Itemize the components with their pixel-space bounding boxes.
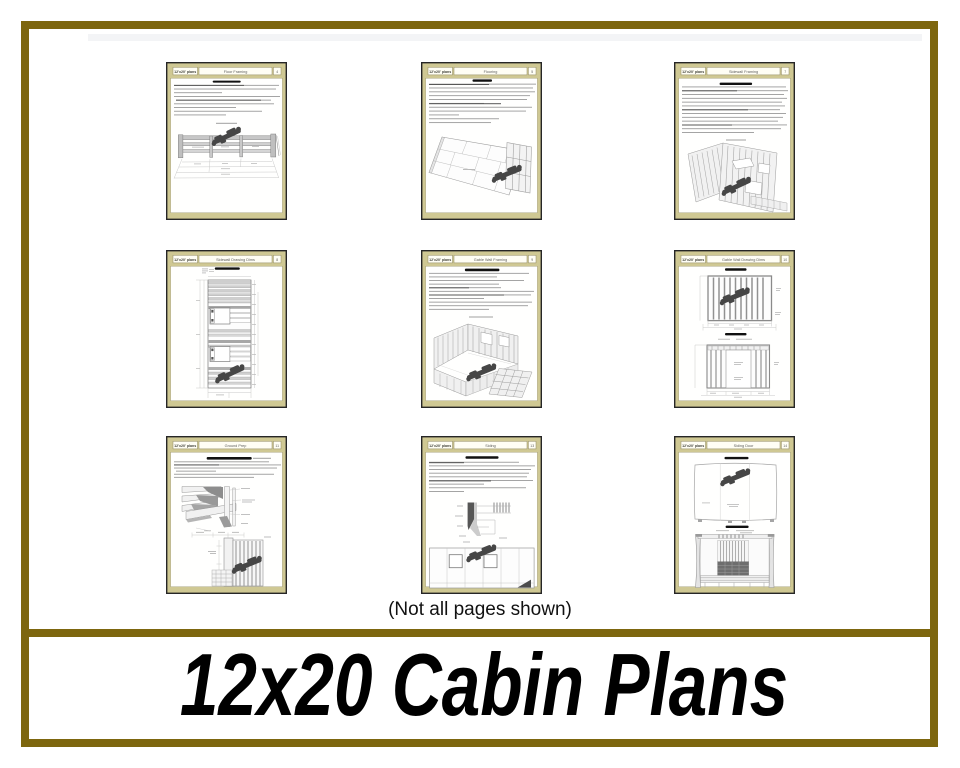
svg-text:Siding: Siding bbox=[485, 444, 496, 448]
svg-text:Sidewall Drawing Dims: Sidewall Drawing Dims bbox=[216, 258, 255, 262]
svg-text:7: 7 bbox=[784, 70, 786, 74]
svg-text:Flooring: Flooring bbox=[483, 70, 497, 74]
svg-text:12'x20' plans: 12'x20' plans bbox=[429, 258, 451, 262]
svg-text:Siding Door: Siding Door bbox=[734, 444, 755, 448]
svg-text:12'x20' plans: 12'x20' plans bbox=[682, 258, 704, 262]
svg-text:12'x20' plans: 12'x20' plans bbox=[682, 444, 704, 448]
svg-text:Floor Framing: Floor Framing bbox=[224, 70, 248, 74]
svg-text:Gable Wall Framing: Gable Wall Framing bbox=[473, 258, 506, 262]
svg-text:12'x20' plans: 12'x20' plans bbox=[174, 444, 196, 448]
svg-text:12'x20' plans: 12'x20' plans bbox=[429, 444, 451, 448]
svg-text:12'x20' plans: 12'x20' plans bbox=[174, 258, 196, 262]
svg-text:5: 5 bbox=[531, 70, 533, 74]
svg-text:13: 13 bbox=[530, 444, 534, 448]
svg-text:8: 8 bbox=[276, 258, 278, 262]
svg-text:12'x20' plans: 12'x20' plans bbox=[174, 70, 196, 74]
svg-text:Gable Wall Drawing Dims: Gable Wall Drawing Dims bbox=[722, 258, 765, 262]
svg-text:Sidewall Framing: Sidewall Framing bbox=[729, 70, 758, 74]
svg-text:12'x20' plans: 12'x20' plans bbox=[682, 70, 704, 74]
svg-text:12'x20' plans: 12'x20' plans bbox=[429, 70, 451, 74]
svg-text:4: 4 bbox=[276, 70, 278, 74]
svg-text:Ground Prep: Ground Prep bbox=[225, 444, 247, 448]
svg-text:10: 10 bbox=[783, 258, 787, 262]
svg-text:14: 14 bbox=[783, 444, 787, 448]
svg-text:9: 9 bbox=[531, 258, 533, 262]
svg-text:11: 11 bbox=[275, 444, 279, 448]
